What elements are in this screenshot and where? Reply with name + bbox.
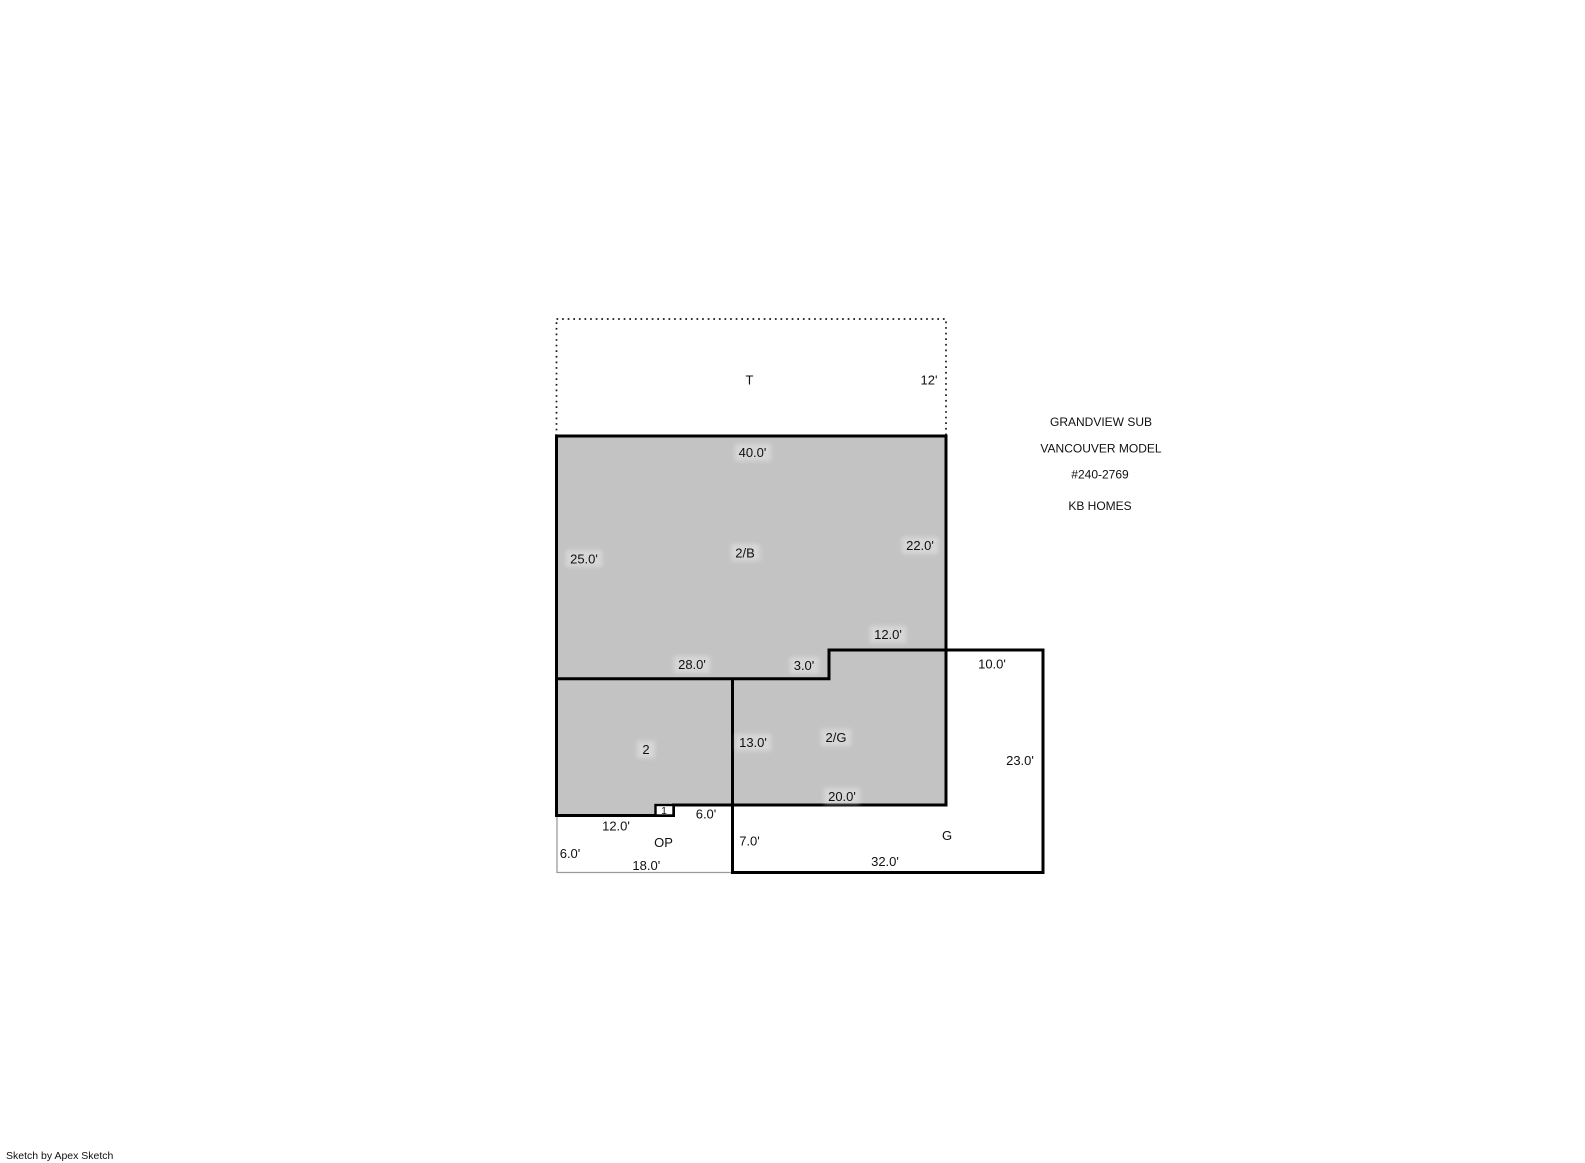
- svg-text:23.0': 23.0': [1006, 753, 1034, 768]
- svg-text:12': 12': [921, 373, 938, 388]
- svg-text:T: T: [746, 373, 754, 388]
- svg-text:28.0': 28.0': [678, 657, 706, 672]
- svg-text:13.0': 13.0': [739, 735, 767, 750]
- svg-text:20.0': 20.0': [828, 789, 856, 804]
- svg-text:12.0': 12.0': [602, 819, 630, 834]
- svg-text:22.0': 22.0': [906, 538, 934, 553]
- svg-text:VANCOUVER MODEL: VANCOUVER MODEL: [1040, 442, 1161, 456]
- svg-text:2/G: 2/G: [826, 730, 847, 745]
- svg-text:1: 1: [661, 806, 667, 817]
- svg-text:32.0': 32.0': [871, 854, 899, 869]
- svg-text:GRANDVIEW SUB: GRANDVIEW SUB: [1050, 415, 1152, 429]
- svg-text:KB HOMES: KB HOMES: [1068, 499, 1131, 513]
- svg-text:OP: OP: [654, 835, 673, 850]
- svg-text:40.0': 40.0': [739, 445, 767, 460]
- svg-text:6.0': 6.0': [696, 807, 717, 822]
- svg-text:G: G: [942, 828, 952, 843]
- svg-text:18.0': 18.0': [632, 858, 660, 873]
- svg-text:12.0': 12.0': [874, 627, 902, 642]
- svg-text:10.0': 10.0': [978, 657, 1006, 672]
- svg-text:2/B: 2/B: [735, 546, 755, 561]
- svg-text:25.0': 25.0': [570, 552, 598, 567]
- svg-text:Sketch by Apex Sketch: Sketch by Apex Sketch: [6, 1150, 114, 1162]
- svg-text:#240-2769: #240-2769: [1071, 468, 1129, 482]
- svg-text:3.0': 3.0': [794, 658, 815, 673]
- svg-text:2: 2: [642, 742, 649, 757]
- svg-text:7.0': 7.0': [739, 834, 760, 849]
- svg-text:6.0': 6.0': [560, 846, 581, 861]
